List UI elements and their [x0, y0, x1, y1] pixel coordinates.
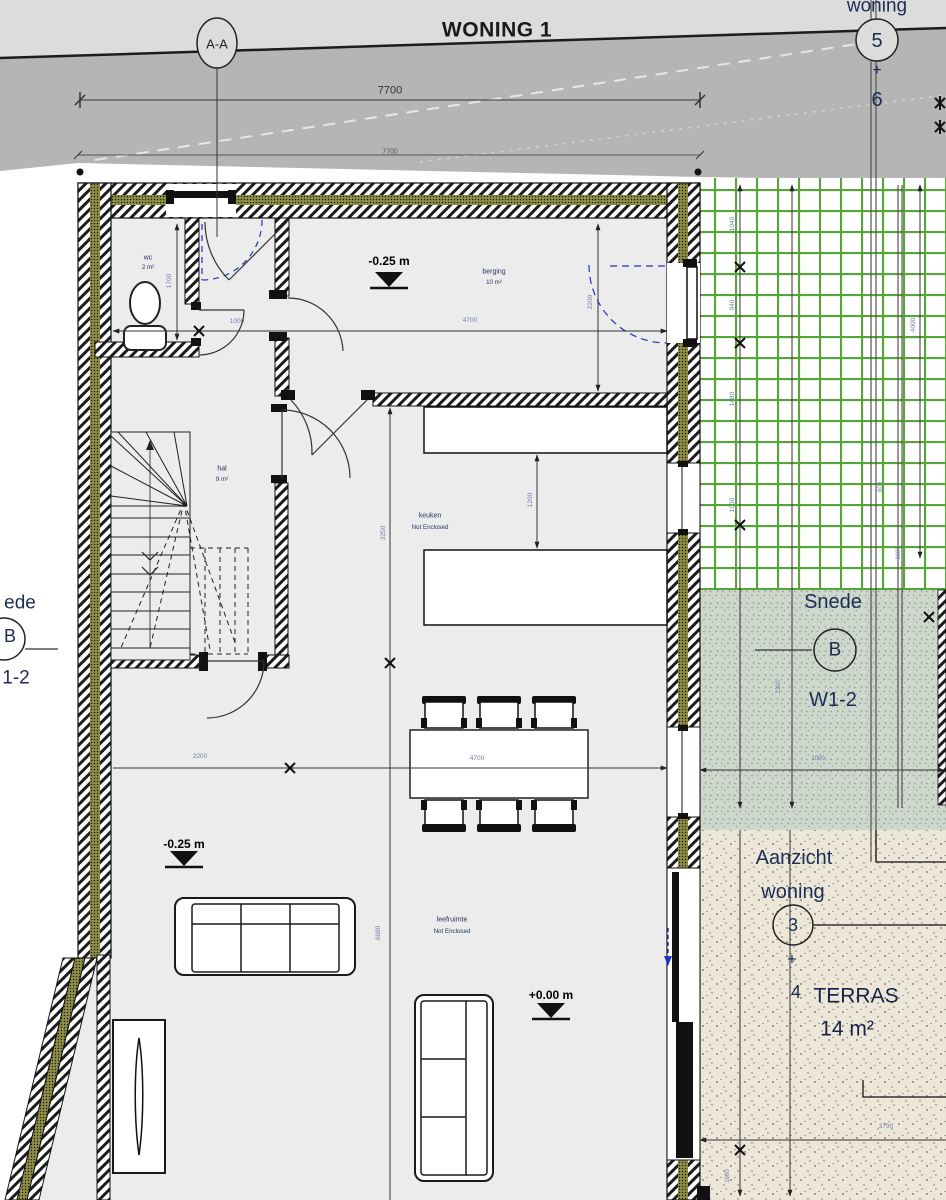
dim-7700-outer: 7700: [378, 86, 402, 97]
lot-plus: +: [872, 63, 881, 79]
room-area-hal: 9 m²: [216, 477, 228, 483]
dim-wc-height: 1700: [167, 274, 174, 288]
sofa-horizontal: [175, 898, 355, 975]
aanzicht-number-4: 4: [791, 983, 801, 1001]
plan-title: WONING 1: [442, 20, 552, 41]
lot-number-6: 6: [871, 90, 882, 110]
dim-grid-5: 800: [878, 482, 884, 492]
neighbor-wall: [938, 590, 946, 805]
dim-keuken-depth: 3250: [381, 526, 388, 540]
chairs-bottom: [421, 800, 577, 832]
room-label-wc: wc: [144, 255, 153, 262]
dim-grass-h: 1000: [811, 756, 824, 762]
dim-terras-width: 3790: [879, 1124, 893, 1131]
dim-grid-3: 1480: [730, 392, 737, 406]
section-aa-label: A-A: [206, 38, 228, 51]
sliding-door: [664, 868, 700, 1160]
room-note-leefruimte: Not Enclosed: [434, 929, 471, 935]
left-snede-partial: ede: [4, 594, 36, 613]
aanzicht-label-1: Aanzicht: [756, 848, 833, 868]
left-snede-ref: 1-2: [2, 669, 29, 688]
dim-grass-v: 1300: [776, 680, 782, 693]
aanzicht-number-3: 3: [788, 916, 798, 934]
dim-living-depth: 6680: [376, 926, 383, 940]
dim-grid-2: 940: [730, 300, 737, 311]
sofa-vertical: [415, 995, 493, 1181]
aanzicht-plus: +: [787, 951, 797, 968]
snede-label: Snede: [804, 592, 862, 612]
dim-berging-width: 4700: [463, 318, 477, 325]
level-berging: -0.25 m: [368, 255, 409, 267]
dim-counter-gap: 1200: [528, 493, 535, 507]
level-living: -0.25 m: [163, 838, 204, 850]
woning-top-label: woning: [847, 0, 907, 16]
room-label-terras: TERRAS: [813, 986, 898, 1007]
room-label-hal: hal: [217, 466, 226, 473]
snede-letter: B: [829, 641, 842, 660]
room-note-keuken: Not Enclosed: [412, 525, 449, 531]
dim-grid-6: 1600: [896, 546, 902, 559]
dim-grid-4: 1000: [730, 498, 737, 512]
room-label-keuken: keuken: [419, 513, 442, 520]
tv-cabinet: [113, 1020, 165, 1173]
room-area-terras: 14 m²: [820, 1019, 874, 1040]
level-terrace: +0.00 m: [529, 989, 573, 1001]
window-eetplaats: [667, 725, 700, 819]
floor-plan: WONING 1 A-A woning 5 + 6 7700 7700 wc 2…: [0, 0, 946, 1200]
room-label-leefruimte: leefruimte: [437, 917, 468, 924]
snede-ref: W1-2: [809, 690, 857, 710]
dim-wc-width: 1000: [230, 319, 244, 326]
dim-living-left: 2200: [193, 754, 207, 761]
left-snede-letter: B: [4, 627, 16, 645]
dim-terras-height: 1600: [725, 1169, 731, 1182]
room-label-berging: berging: [482, 269, 505, 276]
chairs-top: [421, 696, 577, 728]
room-area-wc: 2 m²: [142, 265, 154, 271]
dining-table: [410, 696, 588, 832]
dim-berging-height: 2200: [588, 295, 595, 309]
dim-grid-1: 1040: [730, 217, 737, 231]
window-keuken: [667, 461, 700, 535]
aanzicht-label-2: woning: [761, 882, 824, 902]
front-door: [166, 184, 236, 217]
dim-table-span: 4700: [470, 756, 484, 763]
dim-7700-inner: 7700: [382, 149, 398, 156]
dim-grid-total: 4000: [911, 318, 918, 332]
lot-number-5: 5: [871, 31, 882, 51]
room-area-berging: 10 m²: [486, 280, 502, 286]
